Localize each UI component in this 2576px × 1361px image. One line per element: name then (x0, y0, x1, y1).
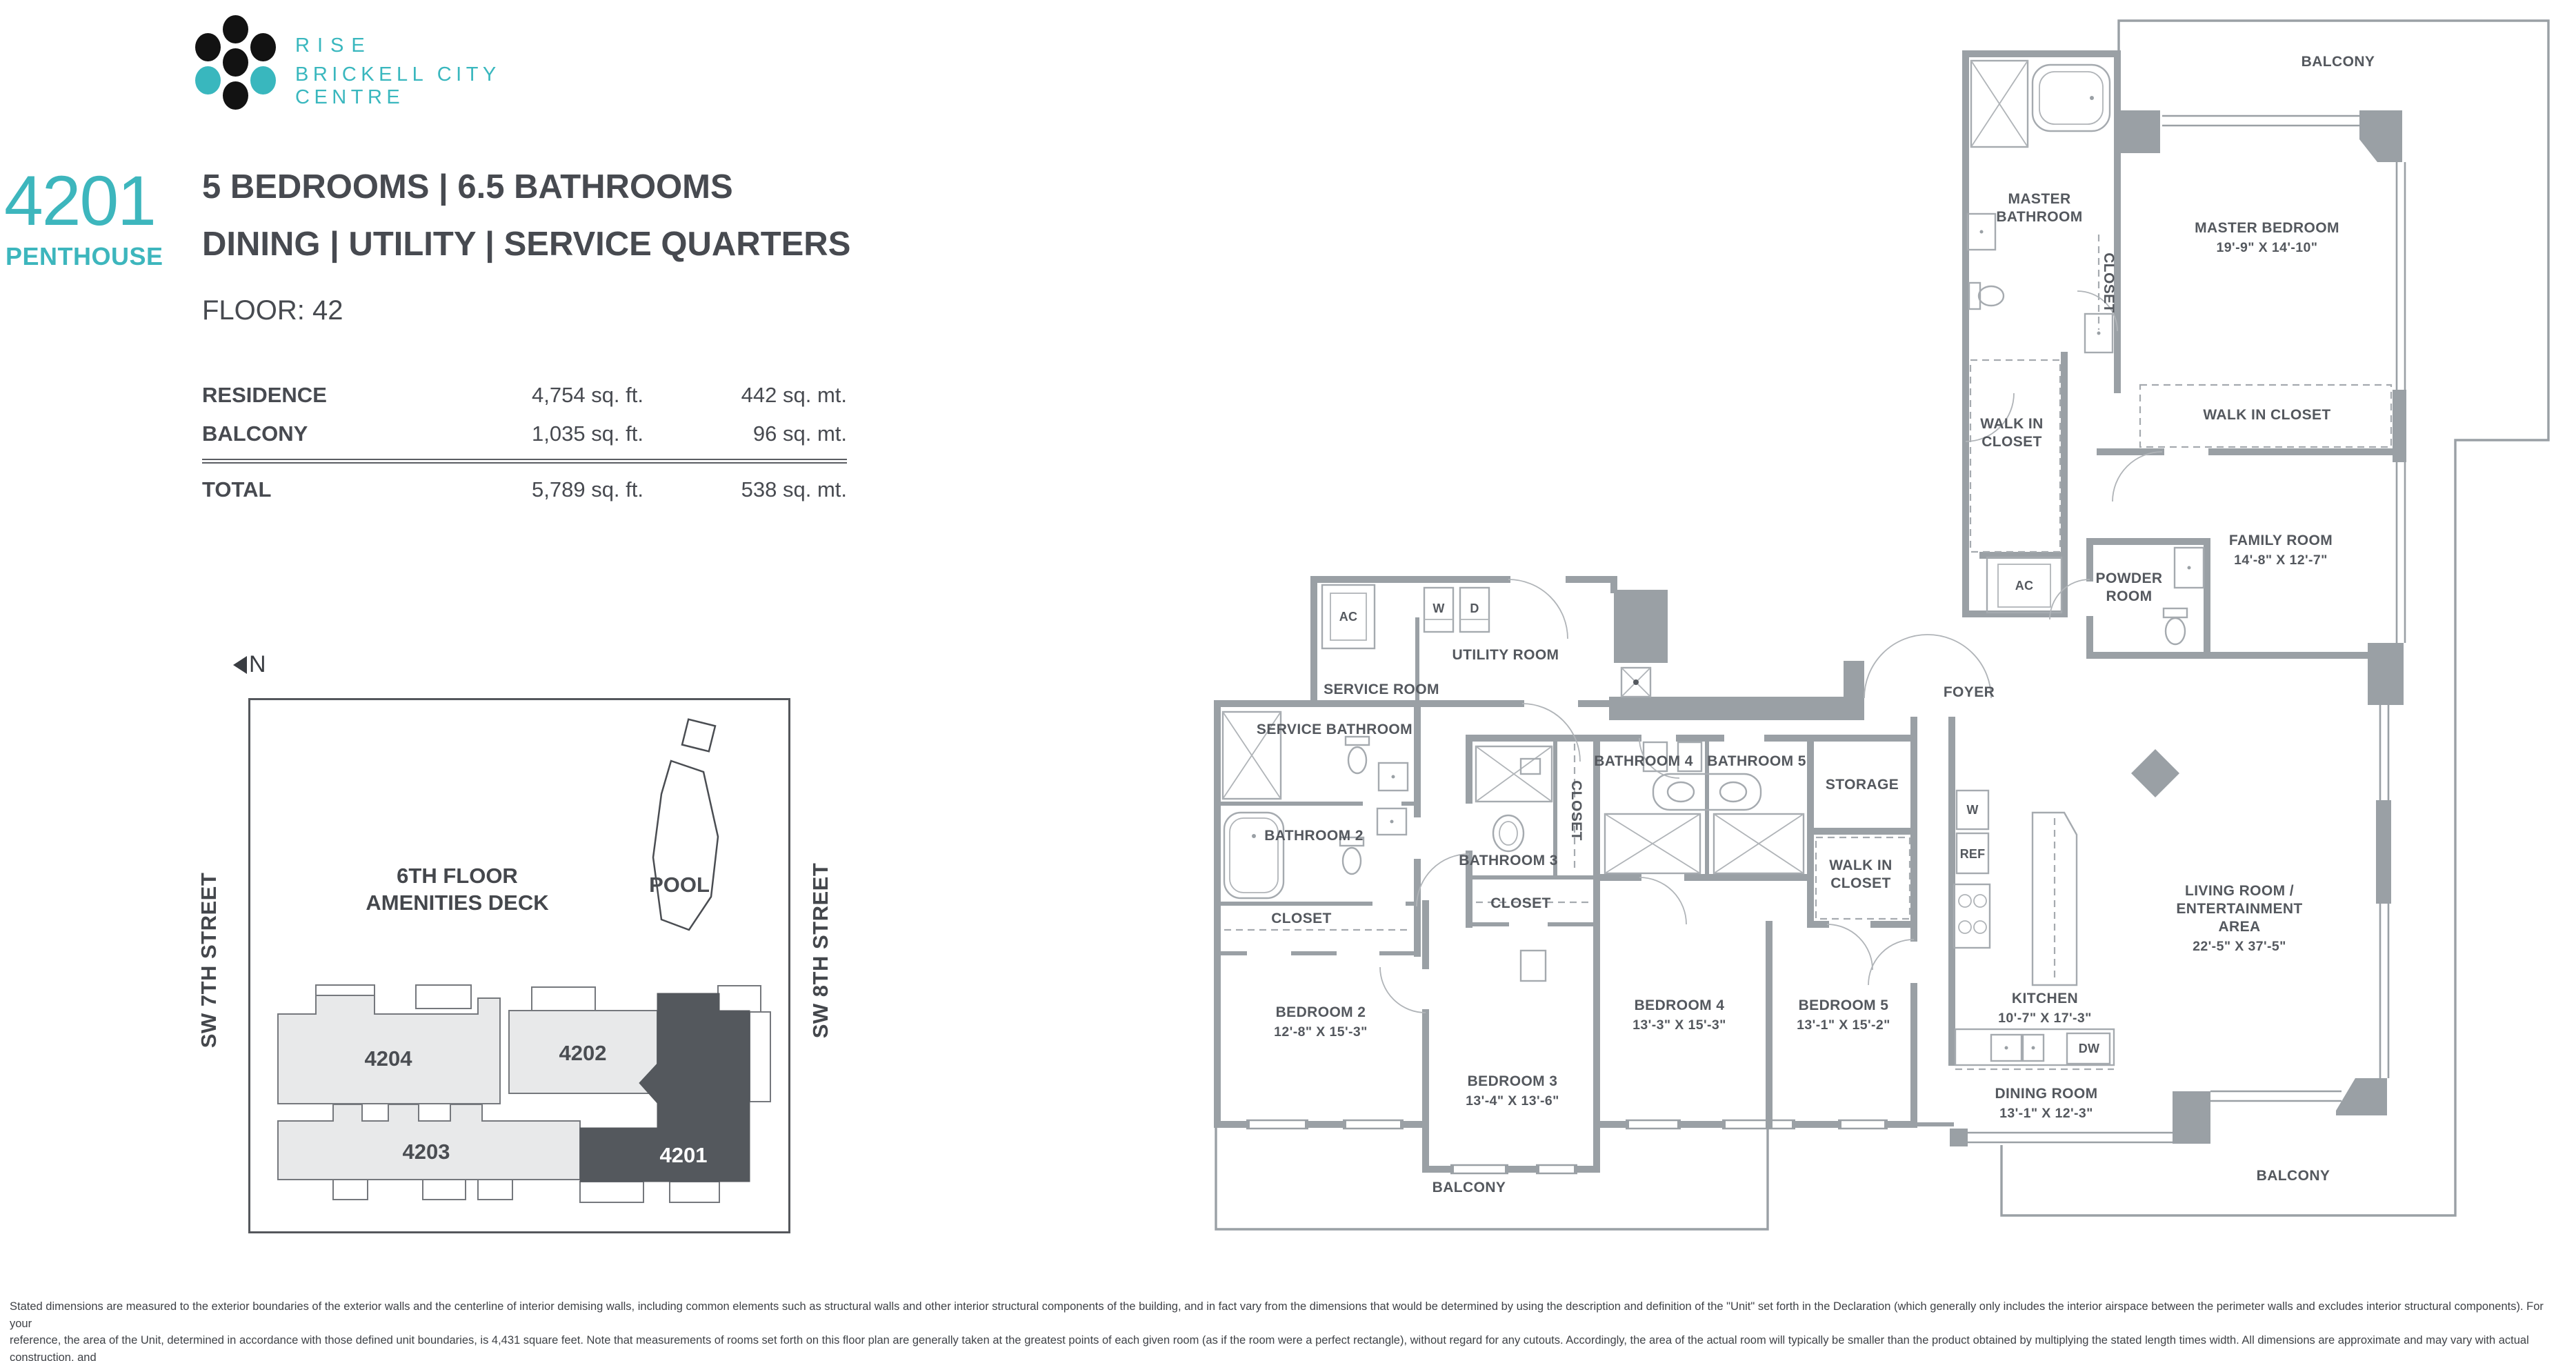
logo-text-bcc: BRICKELL CITY CENTRE (295, 63, 568, 109)
room-label-service-room: SERVICE ROOM (1324, 681, 1439, 699)
table-divider (202, 459, 847, 464)
unit-4203-label: 4203 (403, 1140, 450, 1164)
table-row-residence: RESIDENCE 4,754 sq. ft. 442 sq. mt. (202, 376, 847, 415)
logo-text-rise: RISE (295, 34, 568, 57)
room-label-powder-room: POWDER ROOM (2095, 570, 2164, 606)
room-label-service-bathroom: SERVICE BATHROOM (1257, 721, 1412, 739)
row-label: RESIDENCE (202, 383, 430, 408)
room-label-living-room: LIVING ROOM / ENTERTAINMENT AREA22'-5" X… (2157, 882, 2322, 955)
building-outline (423, 1178, 466, 1200)
room-label-bedroom-2: BEDROOM 212'-8" X 15'-3" (1274, 1004, 1368, 1041)
row-sqmt: 538 sq. mt. (643, 477, 847, 502)
row-sqft: 5,789 sq. ft. (430, 477, 643, 502)
floor-plan-svg (1197, 7, 2576, 1242)
pool-shape (653, 761, 718, 930)
site-plan-keyplan: 6TH FLOOR AMENITIES DECK POOL 4204 (248, 698, 790, 1233)
row-sqmt: 96 sq. mt. (643, 421, 847, 446)
room-label-closet-b2: CLOSET (1271, 910, 1332, 928)
room-label-balcony-bottom: BALCONY (1432, 1179, 1506, 1197)
row-sqft: 4,754 sq. ft. (430, 383, 643, 408)
unit-4202-label: 4202 (559, 1041, 607, 1065)
unit-4204-label: 4204 (365, 1046, 413, 1071)
amenities-deck-line2: AMENITIES DECK (366, 889, 548, 916)
room-label-bedroom-4: BEDROOM 413'-3" X 15'-3" (1633, 997, 1726, 1034)
room-label-wic-master-left: WALK IN CLOSET (1979, 415, 2045, 451)
balcony-outline-bottom (1216, 1126, 1768, 1229)
appliance-label-ac-service: AC (1339, 608, 1357, 626)
appliance-label-ac-hall: AC (2015, 577, 2033, 595)
building-outline (580, 1182, 643, 1202)
room-label-bathroom-5: BATHROOM 5 (1707, 753, 1806, 771)
building-outline (670, 1182, 719, 1202)
room-label-bedroom-5: BEDROOM 513'-1" X 15'-2" (1797, 997, 1890, 1034)
site-plan-svg: POOL 4204 4202 4203 4201 (250, 700, 784, 1227)
brand-logo: RISE BRICKELL CITY CENTRE (195, 15, 568, 105)
spec-line-bed-bath: 5 BEDROOMS | 6.5 BATHROOMS (202, 168, 733, 206)
logo-dots-icon (195, 15, 278, 105)
building-outline (718, 986, 761, 1012)
room-label-bedroom-3: BEDROOM 313'-4" X 13'-6" (1466, 1073, 1559, 1110)
room-label-wic-bed5: WALK IN CLOSET (1825, 857, 1897, 893)
legal-disclaimer: Stated dimensions are measured to the ex… (10, 1298, 2568, 1361)
table-row-balcony: BALCONY 1,035 sq. ft. 96 sq. mt. (202, 415, 847, 453)
building-outline (750, 1012, 770, 1102)
spa-shape (682, 719, 715, 752)
room-label-closet-b3-side: CLOSET (1567, 780, 1585, 841)
spec-line-features: DINING | UTILITY | SERVICE QUARTERS (202, 225, 850, 264)
area-table: RESIDENCE 4,754 sq. ft. 442 sq. mt. BALC… (202, 376, 847, 509)
appliance-label-washer-kitchen: W (1966, 801, 1978, 819)
building-outline (416, 985, 471, 1009)
floor-plan: BALCONY MASTER BATHROOM CLOSET MASTER BE… (1197, 7, 2576, 1242)
row-sqmt: 442 sq. mt. (643, 383, 847, 408)
unit-4201-label: 4201 (660, 1143, 708, 1167)
room-label-bathroom-3: BATHROOM 3 (1459, 852, 1558, 870)
unit-type-label: PENTHOUSE (6, 242, 163, 271)
disclaimer-line-2: reference, the area of the Unit, determi… (10, 1332, 2568, 1361)
building-outline (333, 1178, 368, 1200)
street-label-sw7: SW 7TH STREET (197, 873, 221, 1049)
room-label-bathroom-4: BATHROOM 4 (1594, 753, 1693, 771)
room-label-balcony-top: BALCONY (2302, 53, 2375, 71)
row-label: TOTAL (202, 477, 430, 502)
appliance-label-refrigerator: REF (1960, 845, 1986, 863)
building-outline (532, 987, 595, 1012)
floorplan-brochure-page: RISE BRICKELL CITY CENTRE 4201 PENTHOUSE… (0, 0, 2576, 1361)
room-label-balcony-right: BALCONY (2257, 1167, 2330, 1185)
table-row-total: TOTAL 5,789 sq. ft. 538 sq. mt. (202, 470, 847, 509)
room-label-foyer: FOYER (1944, 684, 1995, 702)
appliance-label-washer: W (1432, 599, 1444, 617)
floor-label: FLOOR: 42 (202, 295, 343, 326)
row-label: BALCONY (202, 421, 430, 446)
room-label-master-closet: CLOSET (2099, 252, 2117, 313)
room-label-master-bathroom: MASTER BATHROOM (1995, 190, 2084, 226)
room-label-master-bedroom: MASTER BEDROOM19'-9" X 14'-10" (2195, 219, 2339, 257)
disclaimer-line-1: Stated dimensions are measured to the ex… (10, 1298, 2568, 1332)
room-label-wic-master-right: WALK IN CLOSET (2203, 406, 2330, 424)
unit-number: 4201 (4, 161, 155, 241)
room-label-kitchen: KITCHEN10'-7" X 17'-3" (1998, 990, 2092, 1027)
building-outline (478, 1178, 512, 1200)
row-sqft: 1,035 sq. ft. (430, 421, 643, 446)
north-arrow-icon (233, 656, 247, 674)
room-label-bathroom-2: BATHROOM 2 (1264, 827, 1364, 845)
amenities-deck-line1: 6TH FLOOR (366, 862, 548, 889)
room-label-storage: STORAGE (1826, 776, 1899, 794)
room-label-family-room: FAMILY ROOM14'-8" X 12'-7" (2229, 532, 2333, 569)
room-label-closet-bed3: CLOSET (1490, 895, 1551, 913)
room-label-dining-room: DINING ROOM13'-1" X 12'-3" (1995, 1085, 2097, 1122)
street-label-sw8: SW 8TH STREET (808, 863, 833, 1039)
appliance-label-dryer: D (1470, 599, 1479, 617)
room-label-utility-room: UTILITY ROOM (1452, 646, 1559, 664)
north-arrow: N (233, 651, 266, 678)
appliance-label-dishwasher: DW (2079, 1040, 2099, 1057)
pool-label: POOL (649, 873, 710, 897)
